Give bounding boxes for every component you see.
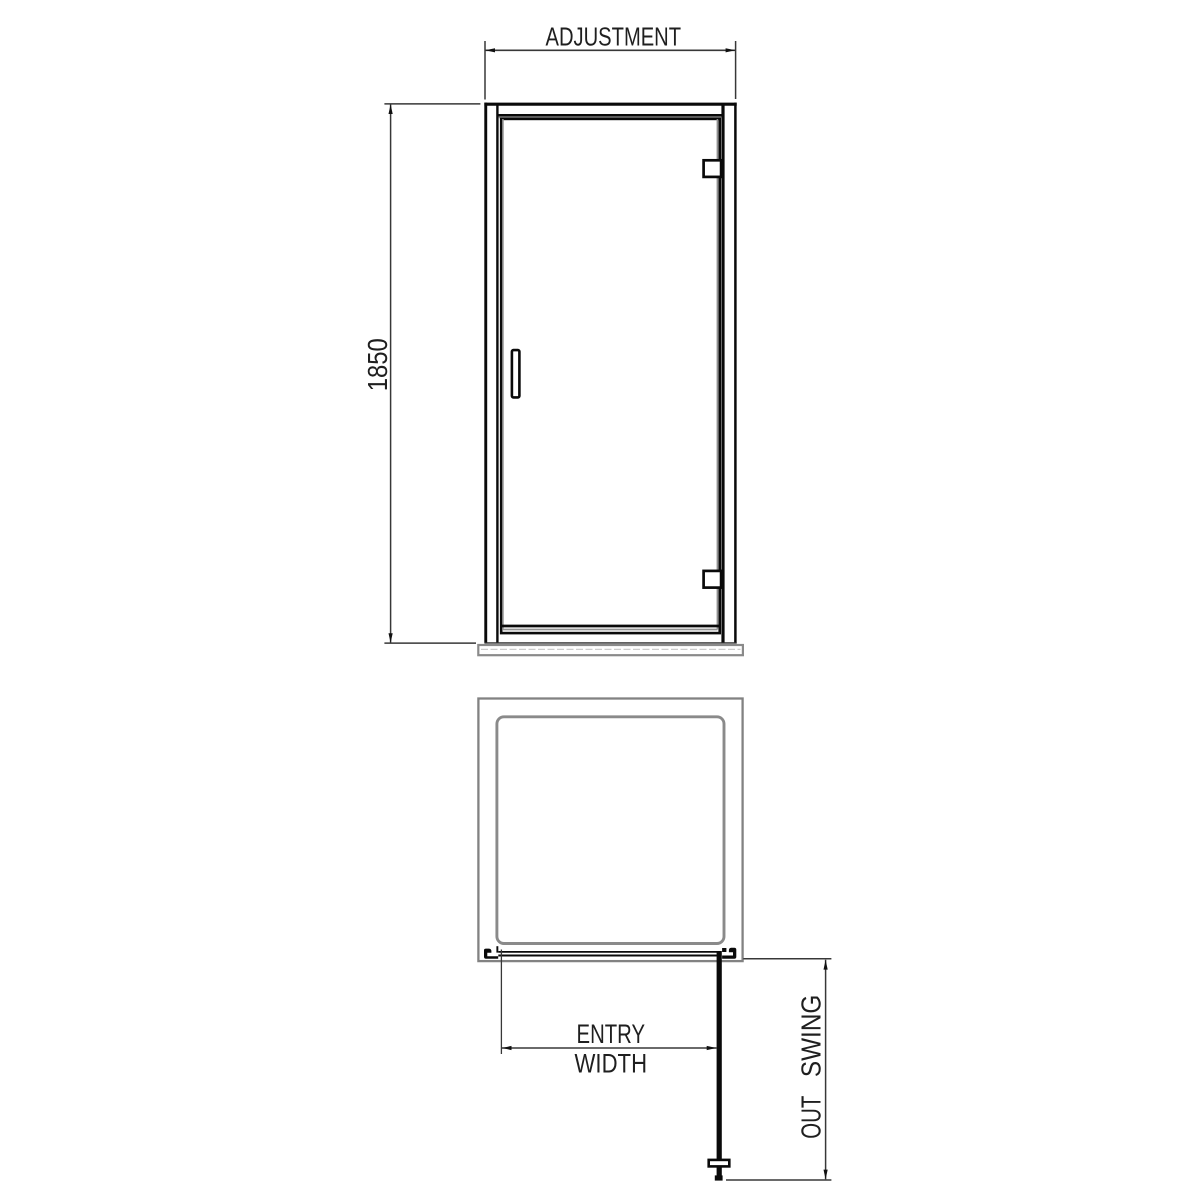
svg-text:SWING: SWING: [796, 995, 827, 1078]
svg-text:ADJUSTMENT: ADJUSTMENT: [546, 22, 682, 52]
svg-text:OUT: OUT: [796, 1096, 827, 1139]
svg-text:1850: 1850: [362, 338, 393, 391]
svg-text:WIDTH: WIDTH: [575, 1049, 648, 1079]
svg-text:ENTRY: ENTRY: [577, 1019, 646, 1049]
